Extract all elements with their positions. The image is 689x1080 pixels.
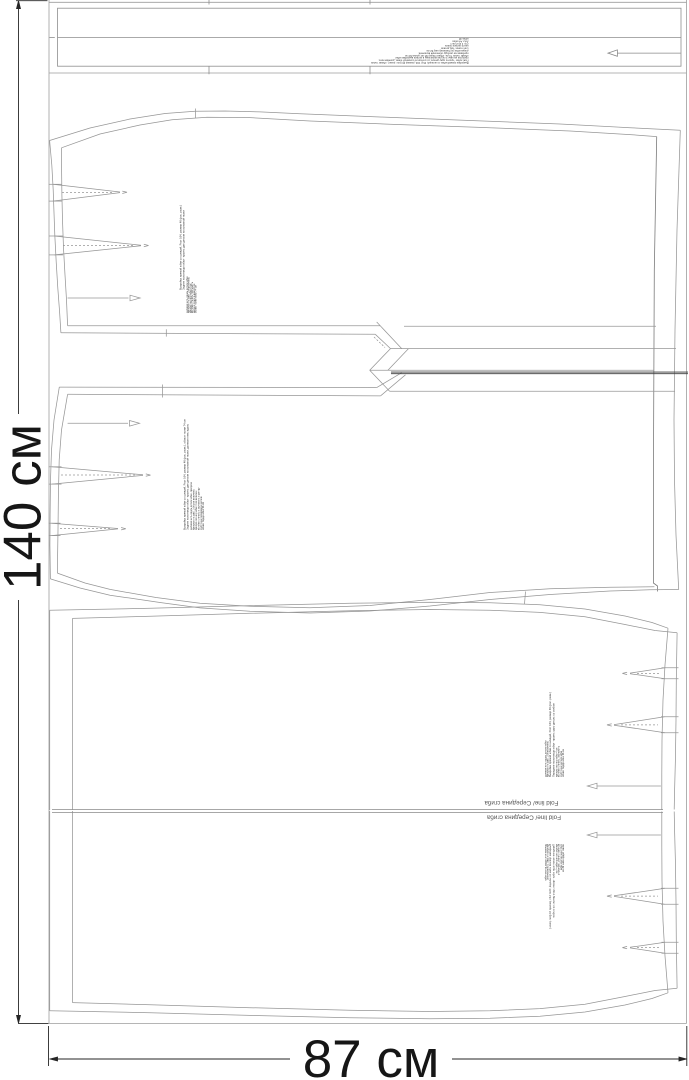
svg-text:87 см: 87 см <box>303 1030 440 1080</box>
svg-text:Fold line/ Середина сгиба: Fold line/ Середина сгиба <box>486 813 561 821</box>
svg-text:Fold line/ Середина сгиба: Fold line/ Середина сгиба <box>484 799 559 807</box>
svg-text:обхват талии юбки 74 см: обхват талии юбки 74 см <box>195 285 198 313</box>
svg-text:Заднее полотнище юбки - кроить: Заднее полотнище юбки - кроить две детал… <box>186 423 190 530</box>
svg-text:Заднее полотнище юбки - кроить: Заднее полотнище юбки - кроить две детал… <box>182 210 186 290</box>
svg-text:юбка 46: юбка 46 <box>458 37 468 41</box>
svg-text:обхват бёдер юбки 98 см: обхват бёдер юбки 98 см <box>202 502 205 530</box>
svg-text:140 см: 140 см <box>0 424 53 590</box>
svg-text:припуски на швы 1 см включены: припуски на швы 1 см включены <box>547 741 550 777</box>
svg-text:обхват бёдер юбки 98 см: обхват бёдер юбки 98 см <box>562 749 565 777</box>
